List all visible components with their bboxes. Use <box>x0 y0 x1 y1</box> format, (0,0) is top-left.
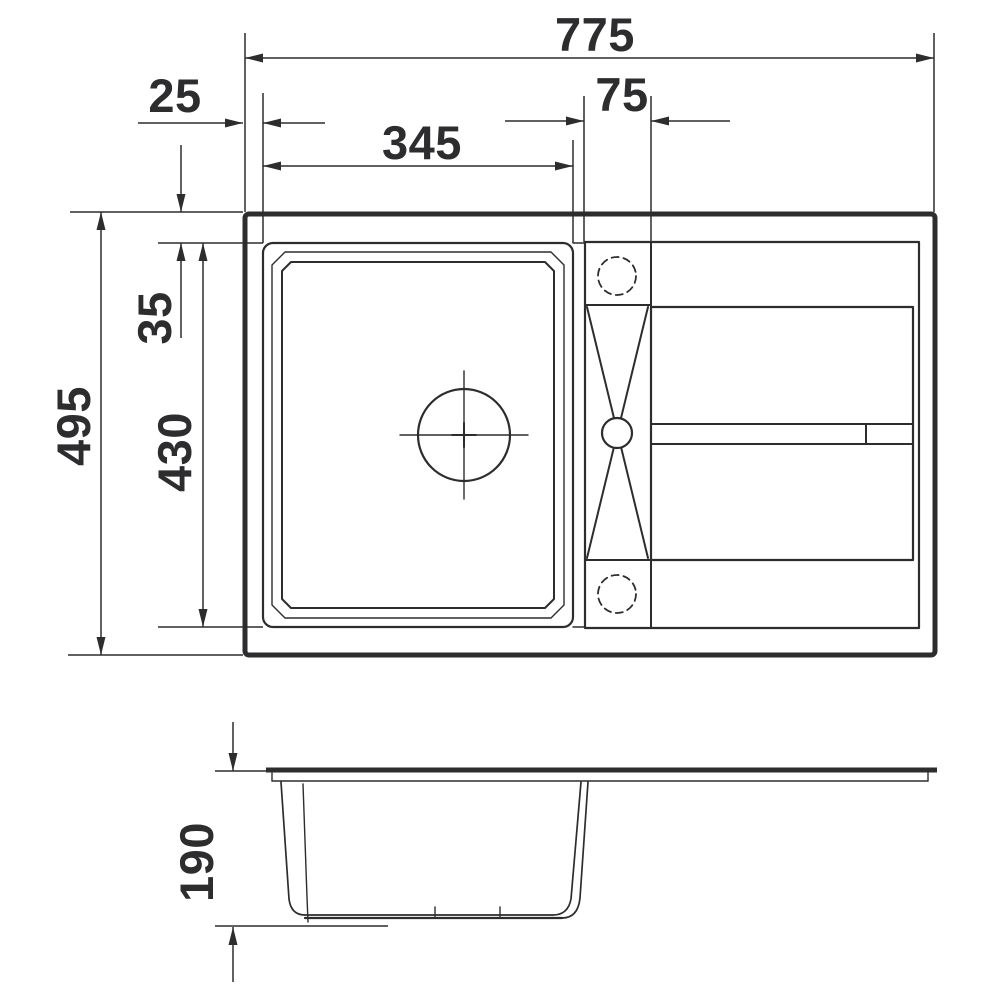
dim-left-offset: 25 <box>138 69 325 243</box>
tap-hole-bottom <box>598 575 636 613</box>
arrowhead-top <box>199 243 208 261</box>
dim-bowl-width: 345 <box>263 116 573 243</box>
arrowhead-right <box>263 119 281 128</box>
arrowhead-down <box>177 194 186 212</box>
side-view: 190 <box>170 722 937 982</box>
drainer-outer-outline <box>585 242 919 628</box>
dim-label-190: 190 <box>170 822 223 902</box>
arrowhead-top <box>97 212 106 230</box>
bowl-inner-profile <box>281 782 581 915</box>
arrowhead-bottom <box>97 637 106 655</box>
sink-outer-outline <box>245 214 935 655</box>
dim-overall-depth: 495 <box>47 212 243 655</box>
drain <box>400 371 528 499</box>
dim-label-35: 35 <box>128 291 181 344</box>
arrowhead-bottom <box>199 609 208 627</box>
arrowhead-down <box>229 753 238 771</box>
arrowhead-right <box>916 54 934 63</box>
bowl-section <box>281 782 588 922</box>
bowl-left-outer-wall <box>303 784 308 922</box>
arrowhead-left <box>245 54 263 63</box>
dim-bowl-height: 190 <box>170 722 388 982</box>
arrowhead-left <box>263 162 281 171</box>
dim-label-25: 25 <box>148 69 201 122</box>
arrowhead-up <box>229 927 238 945</box>
tap-hole-top <box>598 257 636 295</box>
tap-ledge <box>585 242 651 628</box>
dim-label-775: 775 <box>555 8 635 61</box>
plan-view: 775 25 345 75 <box>47 8 935 655</box>
dim-label-495: 495 <box>47 386 100 466</box>
dim-label-75: 75 <box>595 68 648 121</box>
arrowhead-left <box>225 119 243 128</box>
arrowhead-right <box>555 162 573 171</box>
dim-label-345: 345 <box>382 116 462 169</box>
drawing-canvas: 775 25 345 75 <box>0 0 1000 1000</box>
dim-overall-width: 775 <box>245 8 934 212</box>
sink-technical-drawing: 775 25 345 75 <box>0 0 1000 1000</box>
arrowhead-right <box>651 117 669 126</box>
drainer-surface <box>651 307 913 560</box>
cross-brace-center-circle <box>602 418 632 448</box>
arrowhead-up <box>177 243 186 261</box>
drainer-inner-outline <box>651 307 913 560</box>
arrowhead-left <box>566 117 584 126</box>
dim-label-430: 430 <box>148 412 201 492</box>
